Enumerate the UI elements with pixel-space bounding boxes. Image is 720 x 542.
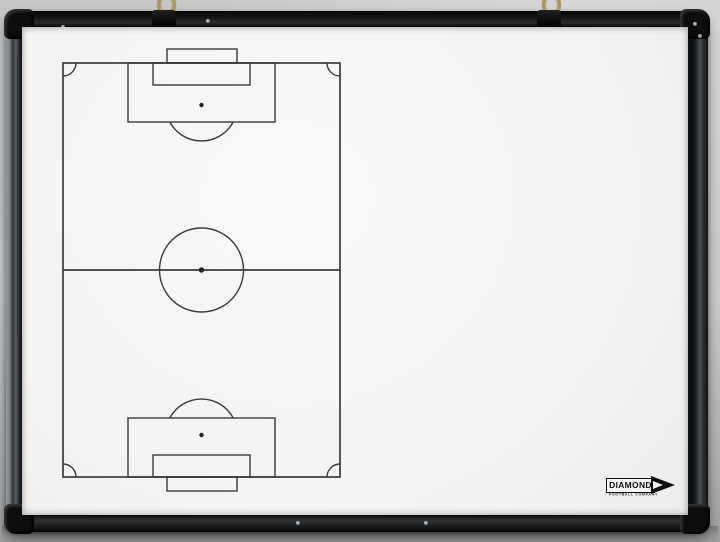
brand-logo: DIAMOND FOOTBALL COMPANY xyxy=(606,477,676,499)
hook-bracket-right xyxy=(537,10,561,27)
screw-icon xyxy=(424,521,428,525)
tactics-whiteboard-photo: DIAMOND FOOTBALL COMPANY xyxy=(0,0,720,542)
hook-bracket-left xyxy=(152,10,176,27)
frame-edge-right xyxy=(690,15,708,528)
brand-logo-arrow-icon xyxy=(651,476,675,494)
screw-icon xyxy=(206,19,210,23)
whiteboard-surface xyxy=(22,27,688,515)
brand-logo-text: DIAMOND xyxy=(609,481,652,490)
frame-edge-top xyxy=(10,11,704,27)
screw-icon xyxy=(693,22,697,26)
brand-logo-tagline: FOOTBALL COMPANY xyxy=(609,493,658,497)
frame-edge-bottom xyxy=(10,514,704,532)
frame-edge-left xyxy=(6,15,23,528)
screw-icon xyxy=(296,521,300,525)
brand-logo-box: DIAMOND xyxy=(606,478,655,493)
brand-logo-arrow-highlight xyxy=(653,481,663,489)
screw-icon xyxy=(698,34,702,38)
